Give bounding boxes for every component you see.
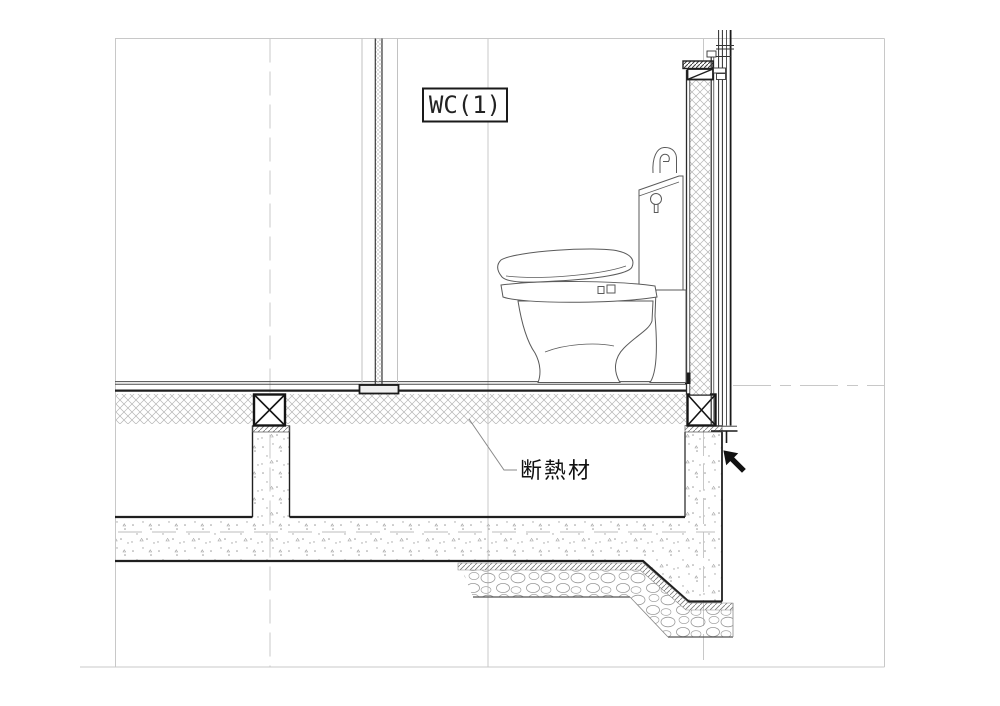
insulation-label: 断熱材 [520, 459, 592, 484]
exterior-wall [683, 30, 738, 443]
top-blocking [683, 61, 713, 69]
toilet-rim [501, 282, 657, 303]
partition-base-plate [360, 385, 399, 394]
wall-insulation [690, 79, 710, 395]
toilet-spout [653, 147, 677, 173]
floor-insulation-band [115, 394, 686, 424]
room-label: WC(1) [429, 91, 501, 119]
floor-girder-section [254, 395, 285, 426]
interior-partition [360, 39, 399, 394]
room-label-group: WC(1) [423, 89, 507, 122]
leader-line [469, 419, 517, 470]
toilet-pedestal [518, 301, 653, 383]
toilet [498, 147, 686, 382]
insulation-annotation: 断熱材 [469, 419, 592, 484]
mortar-beds [253, 426, 723, 433]
section-drawing: WC(1) 断熱材 [0, 0, 1000, 706]
drawing-canvas: WC(1) 断熱材 [0, 0, 1000, 706]
flush-knob [651, 194, 662, 205]
